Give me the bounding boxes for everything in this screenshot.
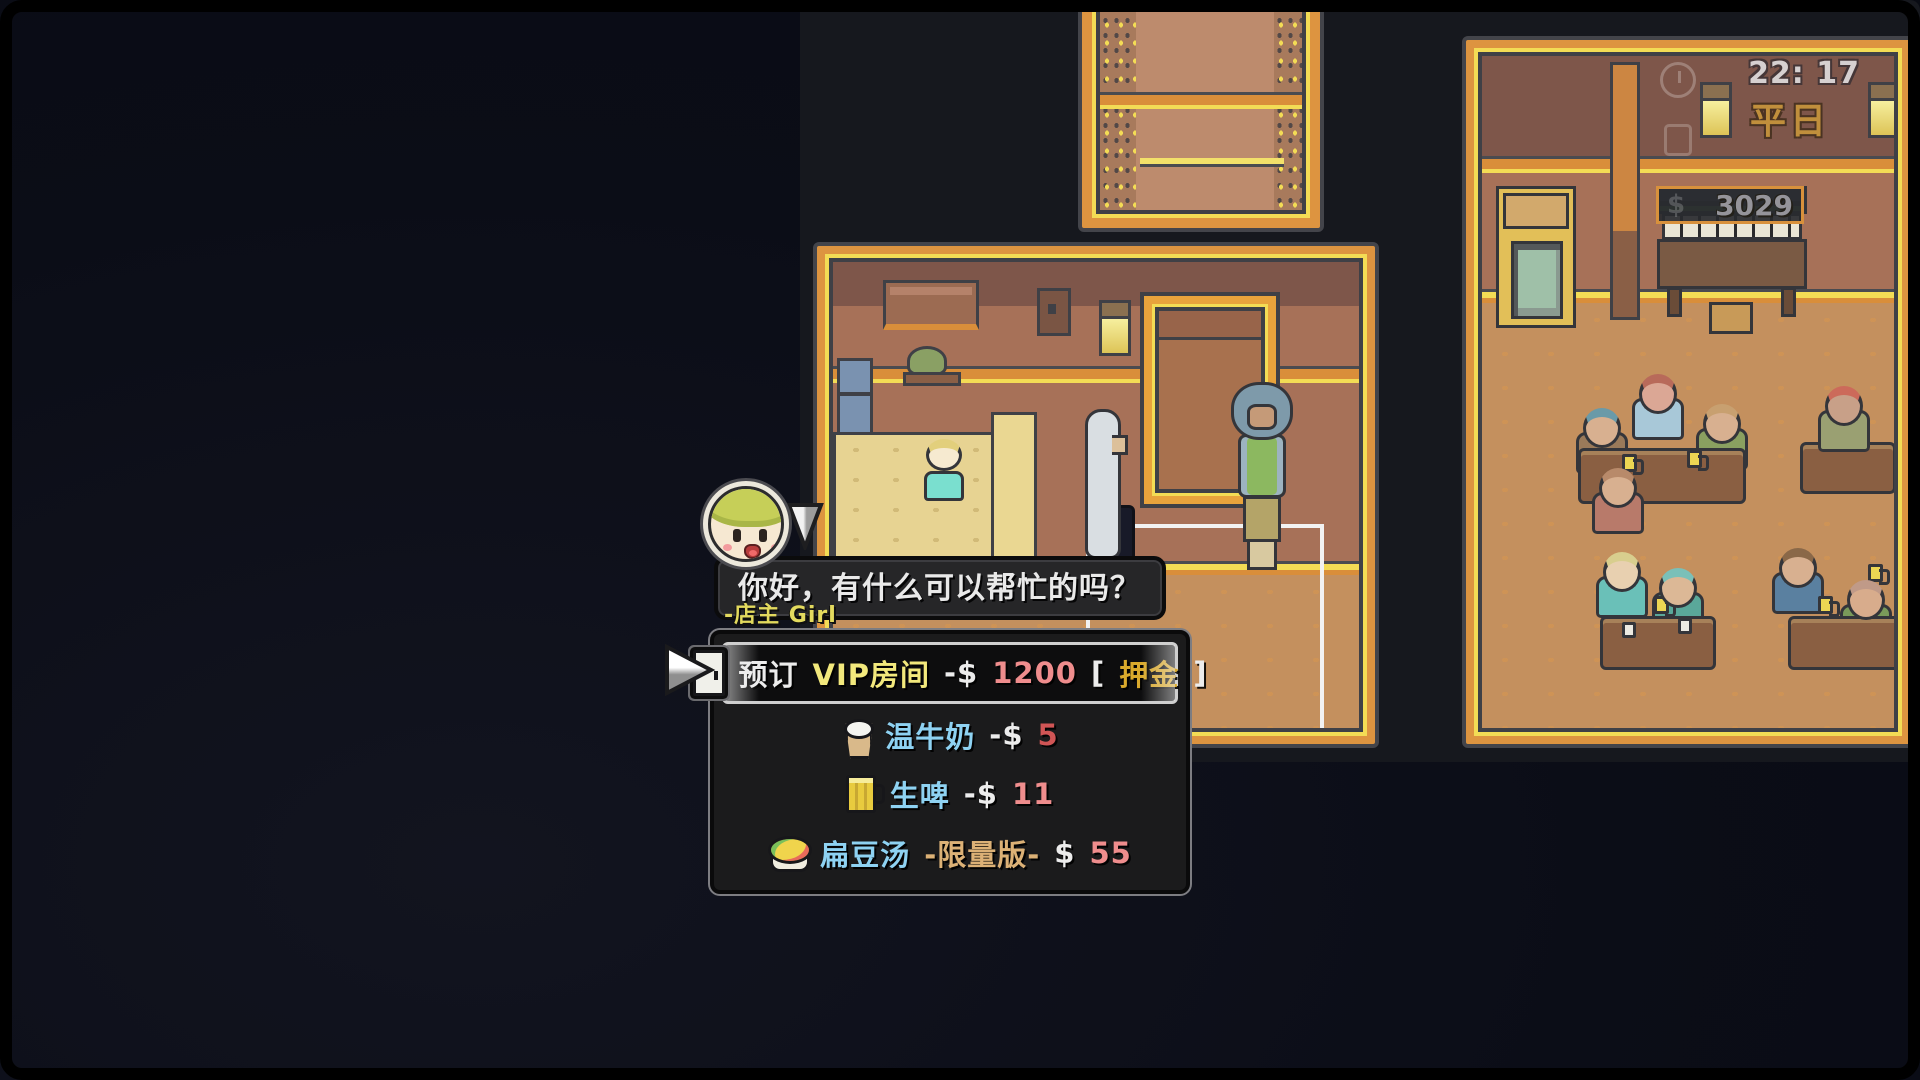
dialogue-menu: 预订VIP房间-$1200[押金] 温牛奶-$5 生啤-$11 扁豆汤-限量版-… — [710, 630, 1190, 894]
sprite-part — [1667, 287, 1682, 317]
gray-hair-npc — [1225, 382, 1301, 592]
dialogue-bubble: 你好，有什么可以帮忙的吗？ -店主 Girl — [714, 556, 1166, 620]
sprite-part — [924, 471, 964, 501]
soup-icon — [768, 834, 806, 872]
sprite-part — [771, 544, 780, 551]
sprite-part — [744, 544, 761, 559]
sprite-part — [1511, 241, 1563, 319]
sprite-part — [1085, 409, 1121, 559]
beer-mug — [1818, 596, 1833, 614]
water-cup — [1622, 622, 1636, 638]
tavern-patron — [1770, 548, 1820, 612]
menu-item-segment: [ — [1091, 656, 1105, 690]
sprite-part — [1781, 287, 1796, 317]
tavern-patron — [1590, 468, 1640, 532]
menu-item-segment: -$ — [944, 656, 978, 690]
menu-item-lentil-soup[interactable]: 扁豆汤-限量版-$55 — [722, 823, 1178, 882]
menu-item-segment: 押金 — [1119, 652, 1179, 694]
menu-item-segment: 55 — [1089, 836, 1131, 870]
speaker-name: -店主 Girl — [724, 597, 837, 629]
air-conditioner — [883, 280, 979, 330]
tavern-patron — [1816, 386, 1866, 450]
sprite-part — [759, 529, 767, 542]
tavern-room — [1462, 36, 1914, 748]
menu-item-segment: ] — [1193, 656, 1207, 690]
upstairs-room — [1078, 0, 1324, 232]
counter-column — [991, 412, 1037, 570]
sprite-part — [1247, 404, 1277, 430]
menu-item-segment: -$ — [989, 718, 1023, 752]
milk-icon — [841, 715, 871, 755]
menu-item-segment: VIP房间 — [813, 652, 931, 694]
tavern-table — [1600, 616, 1716, 670]
tavern-patron — [1594, 552, 1644, 616]
menu-item-segment: 11 — [1012, 777, 1054, 811]
bird-shelf — [903, 346, 955, 386]
menu-item-segment: 1200 — [992, 656, 1077, 690]
menu-item-segment: $ — [1054, 836, 1075, 870]
sprite-part — [723, 544, 732, 551]
tavern-room-interior — [1478, 52, 1898, 732]
wall-lamp-icon — [1099, 300, 1125, 352]
piano — [1657, 186, 1807, 336]
sprite-part — [1657, 186, 1807, 204]
avatar-face — [708, 486, 784, 562]
menu-item-segment: 扁豆汤 — [820, 832, 910, 874]
piano-stool — [1709, 302, 1753, 334]
menu-item-book-vip-room[interactable]: 预订VIP房间-$1200[押金] — [722, 642, 1178, 704]
jukebox — [1496, 186, 1576, 328]
support-pillar — [1610, 62, 1640, 320]
avatar-hair — [708, 486, 784, 527]
menu-item-segment: -$ — [964, 777, 998, 811]
ceiling-band — [1482, 56, 1894, 156]
speaker-avatar — [700, 478, 792, 570]
tavern-patron — [1630, 374, 1680, 438]
menu-item-segment: 生啤 — [890, 773, 950, 815]
menu-item-segment: 5 — [1038, 718, 1059, 752]
sprite-part — [1503, 193, 1569, 229]
upstairs-room-interior — [1096, 0, 1306, 214]
sprite-part — [1657, 239, 1807, 289]
sprite-part — [1112, 435, 1128, 455]
picture-frame — [1037, 288, 1071, 336]
receptionist-npc — [916, 439, 972, 505]
sprite-part — [926, 439, 962, 471]
beer-mug — [1868, 564, 1883, 582]
wall-beam — [1482, 156, 1894, 173]
water-cup — [1678, 618, 1692, 634]
beer-mug — [1687, 450, 1702, 468]
menu-item-draft-beer[interactable]: 生啤-$11 — [722, 765, 1178, 824]
railing — [1140, 158, 1284, 167]
beer-icon — [846, 775, 876, 813]
game-screen: 22: 17 平日 $ 3029 你好，有什么可以帮忙的吗？ -店主 Girl — [0, 0, 1920, 1080]
tavern-table — [1788, 616, 1898, 670]
sprite-part — [1247, 540, 1277, 570]
sprite-part — [1243, 496, 1281, 542]
menu-item-segment: 预订 — [739, 652, 799, 694]
menu-cursor-icon — [662, 642, 716, 698]
sprite-part — [1662, 213, 1802, 240]
wall-lamp-icon — [1868, 82, 1894, 134]
sprite-part — [1238, 434, 1286, 498]
sprite-part — [733, 529, 741, 542]
menu-item-warm-milk[interactable]: 温牛奶-$5 — [722, 706, 1178, 765]
floor-beam — [1100, 92, 1302, 109]
menu-item-segment: 温牛奶 — [885, 714, 975, 756]
wall-lamp-icon — [1700, 82, 1726, 134]
menu-item-segment: -限量版- — [924, 832, 1040, 874]
